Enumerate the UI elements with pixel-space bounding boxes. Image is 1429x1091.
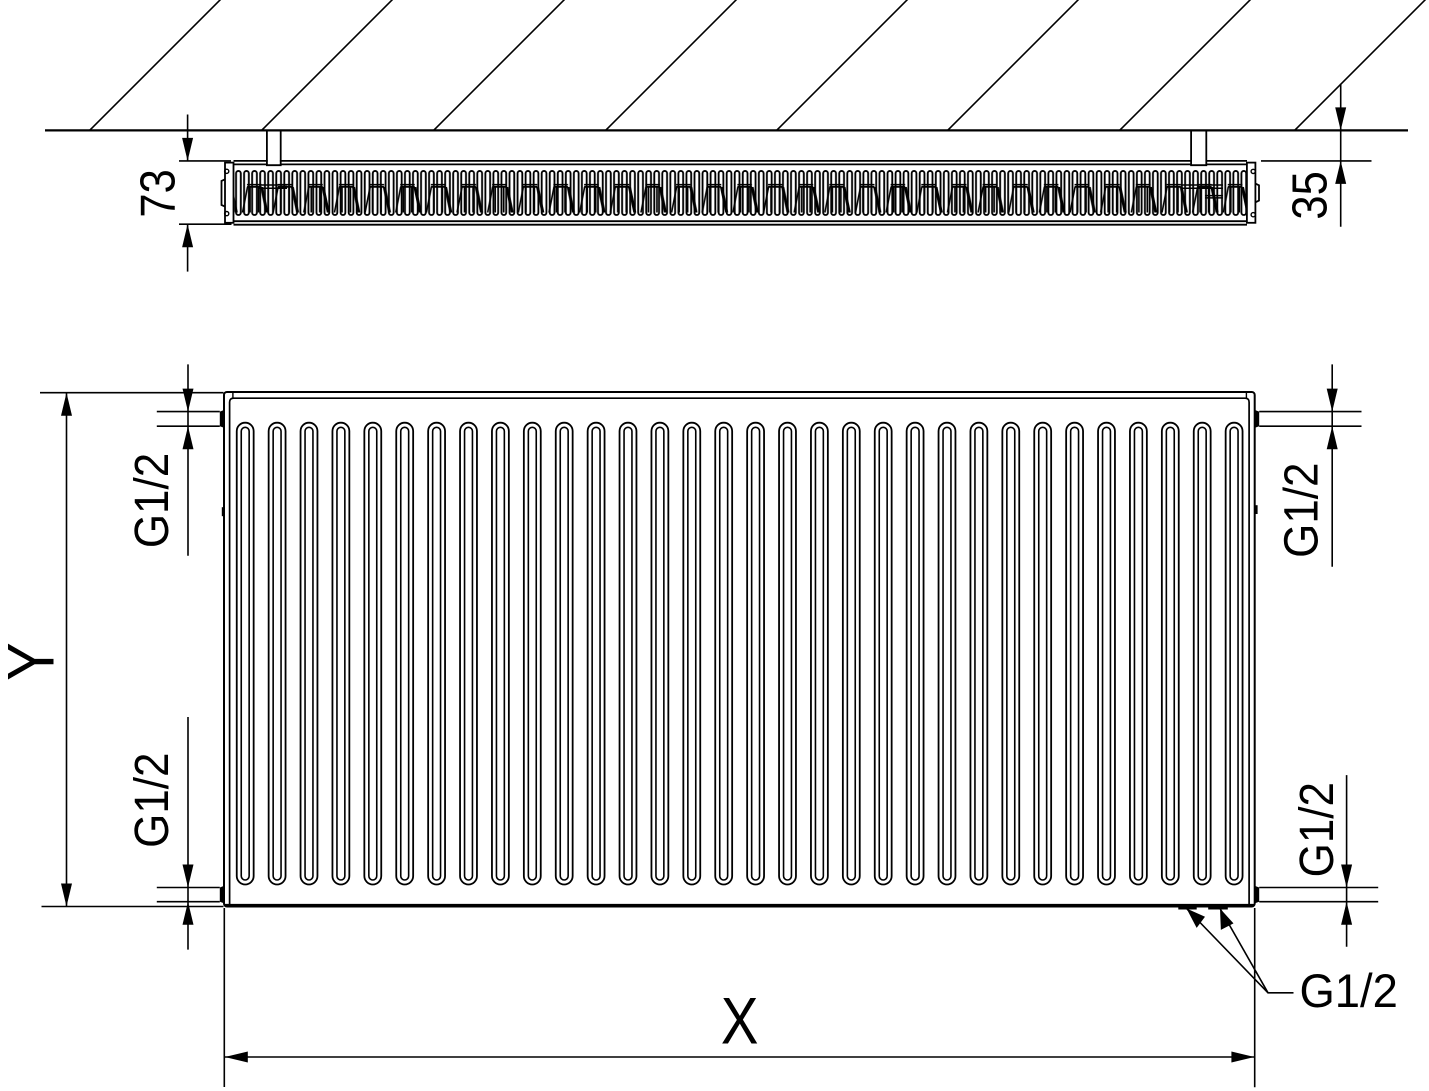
svg-text:G1/2: G1/2	[1274, 463, 1328, 558]
svg-text:G1/2: G1/2	[124, 753, 178, 848]
svg-text:X: X	[721, 985, 759, 1058]
svg-text:35: 35	[1282, 171, 1337, 219]
svg-text:73: 73	[130, 169, 185, 217]
svg-text:G1/2: G1/2	[124, 453, 178, 548]
svg-text:G1/2: G1/2	[1300, 964, 1398, 1017]
svg-text:G1/2: G1/2	[1289, 782, 1343, 877]
svg-text:Y: Y	[0, 642, 68, 680]
